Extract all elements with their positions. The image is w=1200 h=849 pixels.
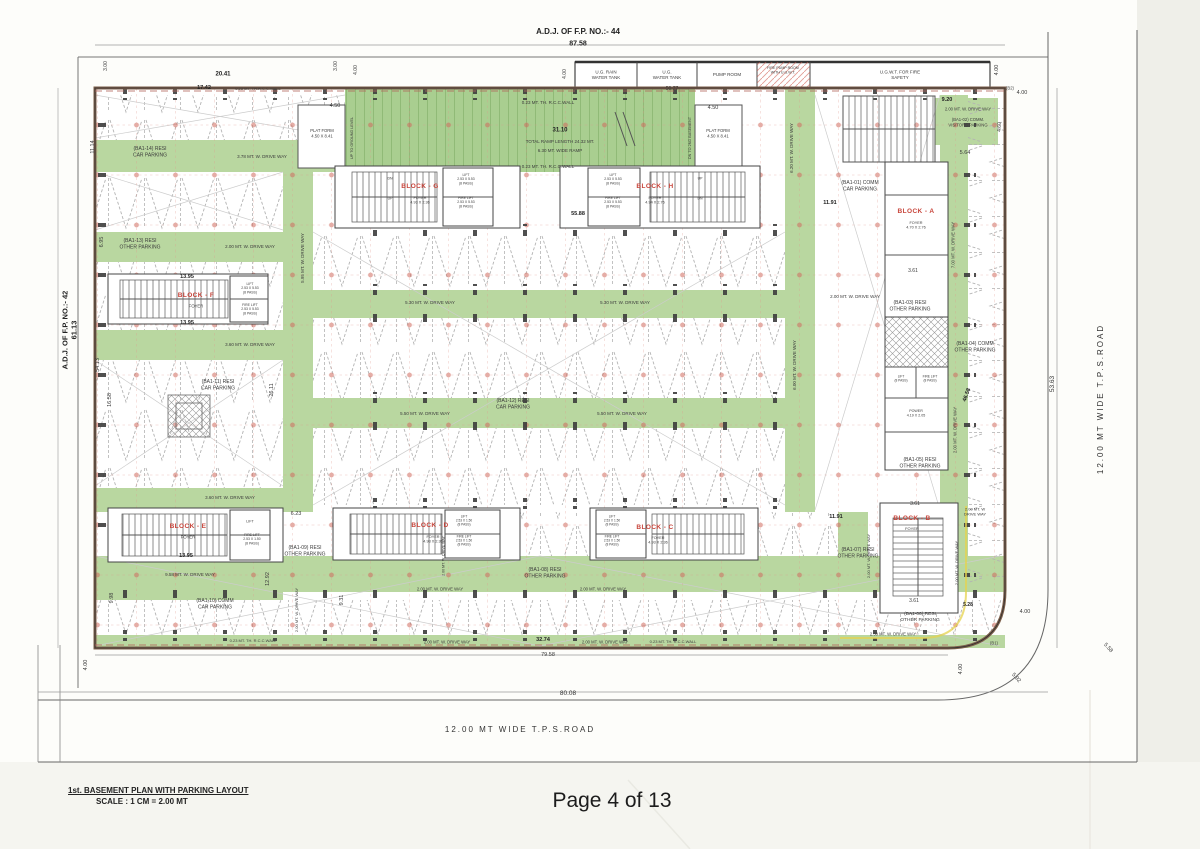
ramp-wall-note-top: 0.23 MT. TH. R.C.C.WALL <box>522 100 575 106</box>
dim-4-00-br1: 4.00 <box>1020 609 1031 616</box>
ramp-length-note: TOTAL RAMP LENGTH 24.32 MT. <box>526 139 595 145</box>
tank-water: U.G. WATER TANK <box>653 69 682 80</box>
block-e-label: BLOCK - E <box>170 523 207 531</box>
block-f-fire-lift: FIRE LIFT 2.53 X 5.53 (8 PASS) <box>241 304 258 317</box>
parking-ba1-08: (BA1-08) RESI OTHER PARKING <box>524 567 565 580</box>
driveway-5-95: 5.95 MT. W. DRIVE WAY <box>300 233 306 283</box>
dim-5-64: 5.64 <box>960 150 971 157</box>
block-g-fire-lift: FIRE LIFT 2.53 X 5.53 (8 PASS) <box>457 197 474 210</box>
driveway-9-58: 9.58 MT. W. DRIVE WAY <box>165 572 215 578</box>
drawing-scale: SCALE : 1 CM = 2.00 MT <box>96 797 248 806</box>
parking-ba1-06: (BA1-06) RESI OTHER PARKING <box>900 611 939 623</box>
block-a-foyer: FOYER 4.70 X 2.76 <box>906 220 925 229</box>
block-b-label: BLOCK - B <box>893 515 930 523</box>
dim-4-00-a: 4.00 <box>353 65 359 75</box>
parking-ba1-14: (BA1-14) RESI CAR PARKING <box>133 146 167 159</box>
dim-79-58: 79.58 <box>541 652 555 659</box>
parking-ba1-10: (BA1-10) COMM CAR PARKING <box>196 598 233 611</box>
plan-annotations: 20.4117.420.23 MT. TH.R.C.C.WALL3.003.00… <box>0 0 1200 849</box>
block-g-label: BLOCK - G <box>401 183 439 191</box>
block-h-dn: DN <box>697 197 702 201</box>
driveway-2-00-d2: 2.00 MT. W. DRIVE WAY <box>582 639 628 644</box>
block-e-fire-lift: FIRE LIFT 2.53 X 1.50 (8 PASS) <box>243 534 260 547</box>
driveway-2-00-r1: 2.00 MT. W. DRIVE WAY <box>830 294 880 300</box>
dim-3-61-c: 3.61 <box>909 598 919 604</box>
drawing-title: 1st. BASEMENT PLAN WITH PARKING LAYOUT <box>68 786 248 795</box>
dim-3-00-a: 3.00 <box>103 61 109 71</box>
parking-ba1-04: (BA1-04) COMM OTHER PARKING <box>954 341 995 354</box>
driveway-5-30-a: 5.30 MT. W. DRIVE WAY <box>405 300 455 306</box>
dim-4-50-l: 4.50 <box>330 103 341 110</box>
dim-16-58: 16.58 <box>107 393 114 407</box>
block-h-up: UP <box>698 177 703 181</box>
parking-ba1-05: (BA1-05) RESI OTHER PARKING <box>899 457 940 470</box>
dim-4-00-tanks: 4.00 <box>562 69 568 79</box>
title-block: 1st. BASEMENT PLAN WITH PARKING LAYOUT S… <box>68 786 248 806</box>
block-f-lift: LIFT 2.53 X 5.53 (8 PASS) <box>241 283 258 296</box>
dim-26-11: 26.11 <box>269 383 276 396</box>
driveway-3-60-a: 3.60 MT. W. DRIVE WAY <box>225 342 275 348</box>
block-c-lift: LIFT 2.53 X 1.50 (8 PASS) <box>604 515 620 527</box>
driveway-2-00-tl: 2.00 MT. W. DRIVE WAY <box>225 244 275 250</box>
block-d-lift: LIFT 2.53 X 1.50 (8 PASS) <box>456 515 472 527</box>
dim-6-95: 6.95 <box>99 237 106 248</box>
tank-rain-water: U.G. RAIN WATER TANK <box>592 69 621 80</box>
tank-fire-safety: U.G.W.T. FOR FIRE SAFETY <box>880 69 920 80</box>
dim-3-00-b: 3.00 <box>333 61 339 71</box>
block-h-foyer: FOYER 4.94 X 2.76 <box>645 195 664 204</box>
corner-marker-b2: (B2) <box>1006 85 1014 90</box>
block-g-foyer: FOYER 4.93 X 2.36 <box>410 195 429 204</box>
dim-6-23: 6.23 <box>291 511 302 518</box>
block-c-label: BLOCK - C <box>636 524 673 532</box>
block-a-lift: LIFT (8 PASS) <box>894 375 907 383</box>
dim-11-91-a: 11.91 <box>823 200 836 207</box>
driveway-2-00-visitors: 2.00 MT. W. DRIVE WAY <box>945 106 991 111</box>
block-d-fire-lift: FIRE LIFT 2.53 X 1.50 (8 PASS) <box>456 535 472 547</box>
driveway-5-50-b: 5.50 MT. W. DRIVE WAY <box>597 411 647 417</box>
platform-right: PLAT FORM 4.50 X 8.41 <box>706 128 730 139</box>
parking-ba1-01: (BA1-01) COMM CAR PARKING <box>841 180 878 193</box>
dim-46-58: 46.58 <box>961 387 972 402</box>
block-a-label: BLOCK - A <box>898 208 935 216</box>
dim-4-00-bl: 4.00 <box>83 660 90 671</box>
dim-4-60: 4.60 <box>997 122 1003 132</box>
driveway-2-00-vl: 2.00 MT. W. DRIVE WAY <box>295 588 300 632</box>
platform-left: PLAT FORM 4.50 X 8.41 <box>310 128 334 139</box>
dim-17-42: 17.42 <box>197 85 211 92</box>
driveway-2-00-bv1: 2.00 MT. W. DRIVE WAY <box>867 534 872 578</box>
dim-13-95-c: 13.95 <box>179 553 193 560</box>
wall-note-top-left: 0.23 MT. TH.R.C.C.WALL <box>235 87 281 92</box>
block-a-fire-lift: FIRE LIFT (8 PASS) <box>923 375 938 383</box>
tank-fire-pump: FIRE PUMP ROOM WITH U.G.W.T. <box>767 66 799 75</box>
dim-31-10: 31.10 <box>552 127 567 135</box>
block-b-foyer: FOYER <box>905 527 919 532</box>
driveway-2-00-bv2: 2.00 MT. W. DRIVE WAY <box>955 541 960 585</box>
dim-20-41: 20.41 <box>215 71 230 79</box>
ramp-up-note: UP TO GROUND LEVEL <box>350 117 355 159</box>
driveway-2-00-d1: 2.00 MT. W. DRIVE WAY <box>424 639 470 644</box>
driveway-2-00-c1: 2.00 MT. W. DRIVE WAY <box>417 586 463 591</box>
tank-pump-room: PUMP ROOM <box>713 72 741 78</box>
block-c-fire-lift: FIRE LIFT 2.53 X 1.50 (8 PASS) <box>604 535 620 547</box>
dim-55-88: 55.88 <box>571 211 585 218</box>
driveway-2-00-c2: 2.00 MT. W. DRIVE WAY <box>580 586 626 591</box>
corner-marker-b1: (B1) <box>990 640 998 645</box>
parking-ba1-03: (BA1-03) RESI OTHER PARKING <box>889 300 930 313</box>
parking-ba1-11: (BA1-11) RESI CAR PARKING <box>201 379 235 392</box>
block-h-label: BLOCK - H <box>636 183 673 191</box>
dim-5-28: 5.28 <box>963 602 973 608</box>
block-d-foyer: FOYER 4.93 X 2.36 <box>423 534 442 543</box>
dim-4-00-tr1: 4.00 <box>994 65 1001 76</box>
dim-11-91-b: 11.91 <box>829 514 842 521</box>
dim-9-20: 9.20 <box>942 97 953 104</box>
driveway-2-00-cv: 2.00 MT. W. DRIVE WAY <box>441 536 446 576</box>
driveway-3-78: 3.78 MT. W. DRIVE WAY <box>237 154 287 160</box>
wall-note-bottom-left: 0.23 MT. TH. R.C.C.WALL <box>230 639 277 644</box>
parking-ba1-07: (BA1-07) RESI OTHER PARKING <box>837 547 878 560</box>
driveway-2-00-b1: 2.00 MT. W DRIVE WAY <box>964 507 986 517</box>
dim-5-58: 5.58 <box>1102 642 1114 655</box>
dim-4-00-tr2: 4.00 <box>1017 90 1028 97</box>
ramp-dn-note: DN TO 2ND BASEMENT <box>688 117 693 159</box>
block-f-foyer: FOYER <box>189 303 203 308</box>
driveway-2-50: 2.50 MT. W. DRIVE WAY <box>870 631 916 636</box>
dim-13-95-a: 13.95 <box>180 274 194 281</box>
dim-12-92: 12.92 <box>265 572 272 586</box>
dim-54-13: 54.13 <box>95 358 102 372</box>
dim-11-14: 11.14 <box>90 140 97 153</box>
ramp-wall-note-bottom: 0.23 MT. TH. R.C.C.WALL <box>522 164 575 170</box>
block-h-lift: LIFT 2.53 X 5.53 (8 PASS) <box>604 174 621 187</box>
parking-ba1-02: (BA1-02) COMM. VISITORS PARKING <box>948 117 987 128</box>
block-f-label: BLOCK - F <box>178 292 214 300</box>
block-d-label: BLOCK - D <box>411 522 448 530</box>
block-g-up: UP <box>388 197 393 201</box>
dim-4-50-r: 4.50 <box>708 105 719 112</box>
dim-3-61-b: 3.61 <box>910 501 920 507</box>
block-e-lift: LIFT <box>246 519 253 524</box>
dim-50-77: 50.77 <box>666 86 679 92</box>
basement-plan-page: 20.4117.420.23 MT. TH.R.C.C.WALL3.003.00… <box>0 0 1200 849</box>
wall-note-bottom-center: 0.23 MT. TH. R.C.C.WALL <box>650 640 697 645</box>
ramp-width-note: 6.30 MT. WIDE RAMP <box>538 148 583 154</box>
parking-ba1-09: (BA1-09) RESI OTHER PARKING <box>284 545 325 558</box>
dim-4-00-br2: 4.00 <box>958 664 965 675</box>
dim-9-98: 9.98 <box>109 593 116 604</box>
driveway-5-50-a: 5.50 MT. W. DRIVE WAY <box>400 411 450 417</box>
dim-3-61-a: 3.61 <box>908 268 918 274</box>
dim-5-92: 5.92 <box>1010 672 1022 685</box>
parking-ba1-12: (BA1-12) RESI CAR PARKING <box>496 398 530 411</box>
block-g-lift: LIFT 2.53 X 5.53 (8 PASS) <box>457 174 474 187</box>
block-a-power: POWER 4.19 X 2.05 <box>907 409 925 418</box>
dim-9-31: 9.31 <box>339 595 346 606</box>
driveway-5-30-b: 5.30 MT. W. DRIVE WAY <box>600 300 650 306</box>
block-e-foyer: FOYER <box>181 534 195 539</box>
dim-13-95-b: 13.95 <box>180 320 194 327</box>
driveway-2-00-rv: 2.00 MT. W. DRIVE WAY <box>952 407 957 453</box>
driveway-7-00: 7.00 MT. W. DRIVE WAY <box>950 222 955 268</box>
block-h-fire-lift: FIRE LIFT 2.53 X 5.53 (8 PASS) <box>604 197 621 210</box>
driveway-6-00: 6.00 MT. W. DRIVE WAY <box>792 340 798 390</box>
driveway-3-60-b: 3.60 MT. W. DRIVE WAY <box>205 495 255 501</box>
block-c-foyer: FOYER 4.93 X 2.36 <box>648 535 667 544</box>
block-g-dn: DN <box>387 177 392 181</box>
page-number: Page 4 of 13 <box>552 789 671 813</box>
dim-32-74: 32.74 <box>536 637 550 644</box>
driveway-6-20: 6.20 MT. W. DRIVE WAY <box>789 123 795 173</box>
parking-ba1-13: (BA1-13) RESI OTHER PARKING <box>119 238 160 251</box>
